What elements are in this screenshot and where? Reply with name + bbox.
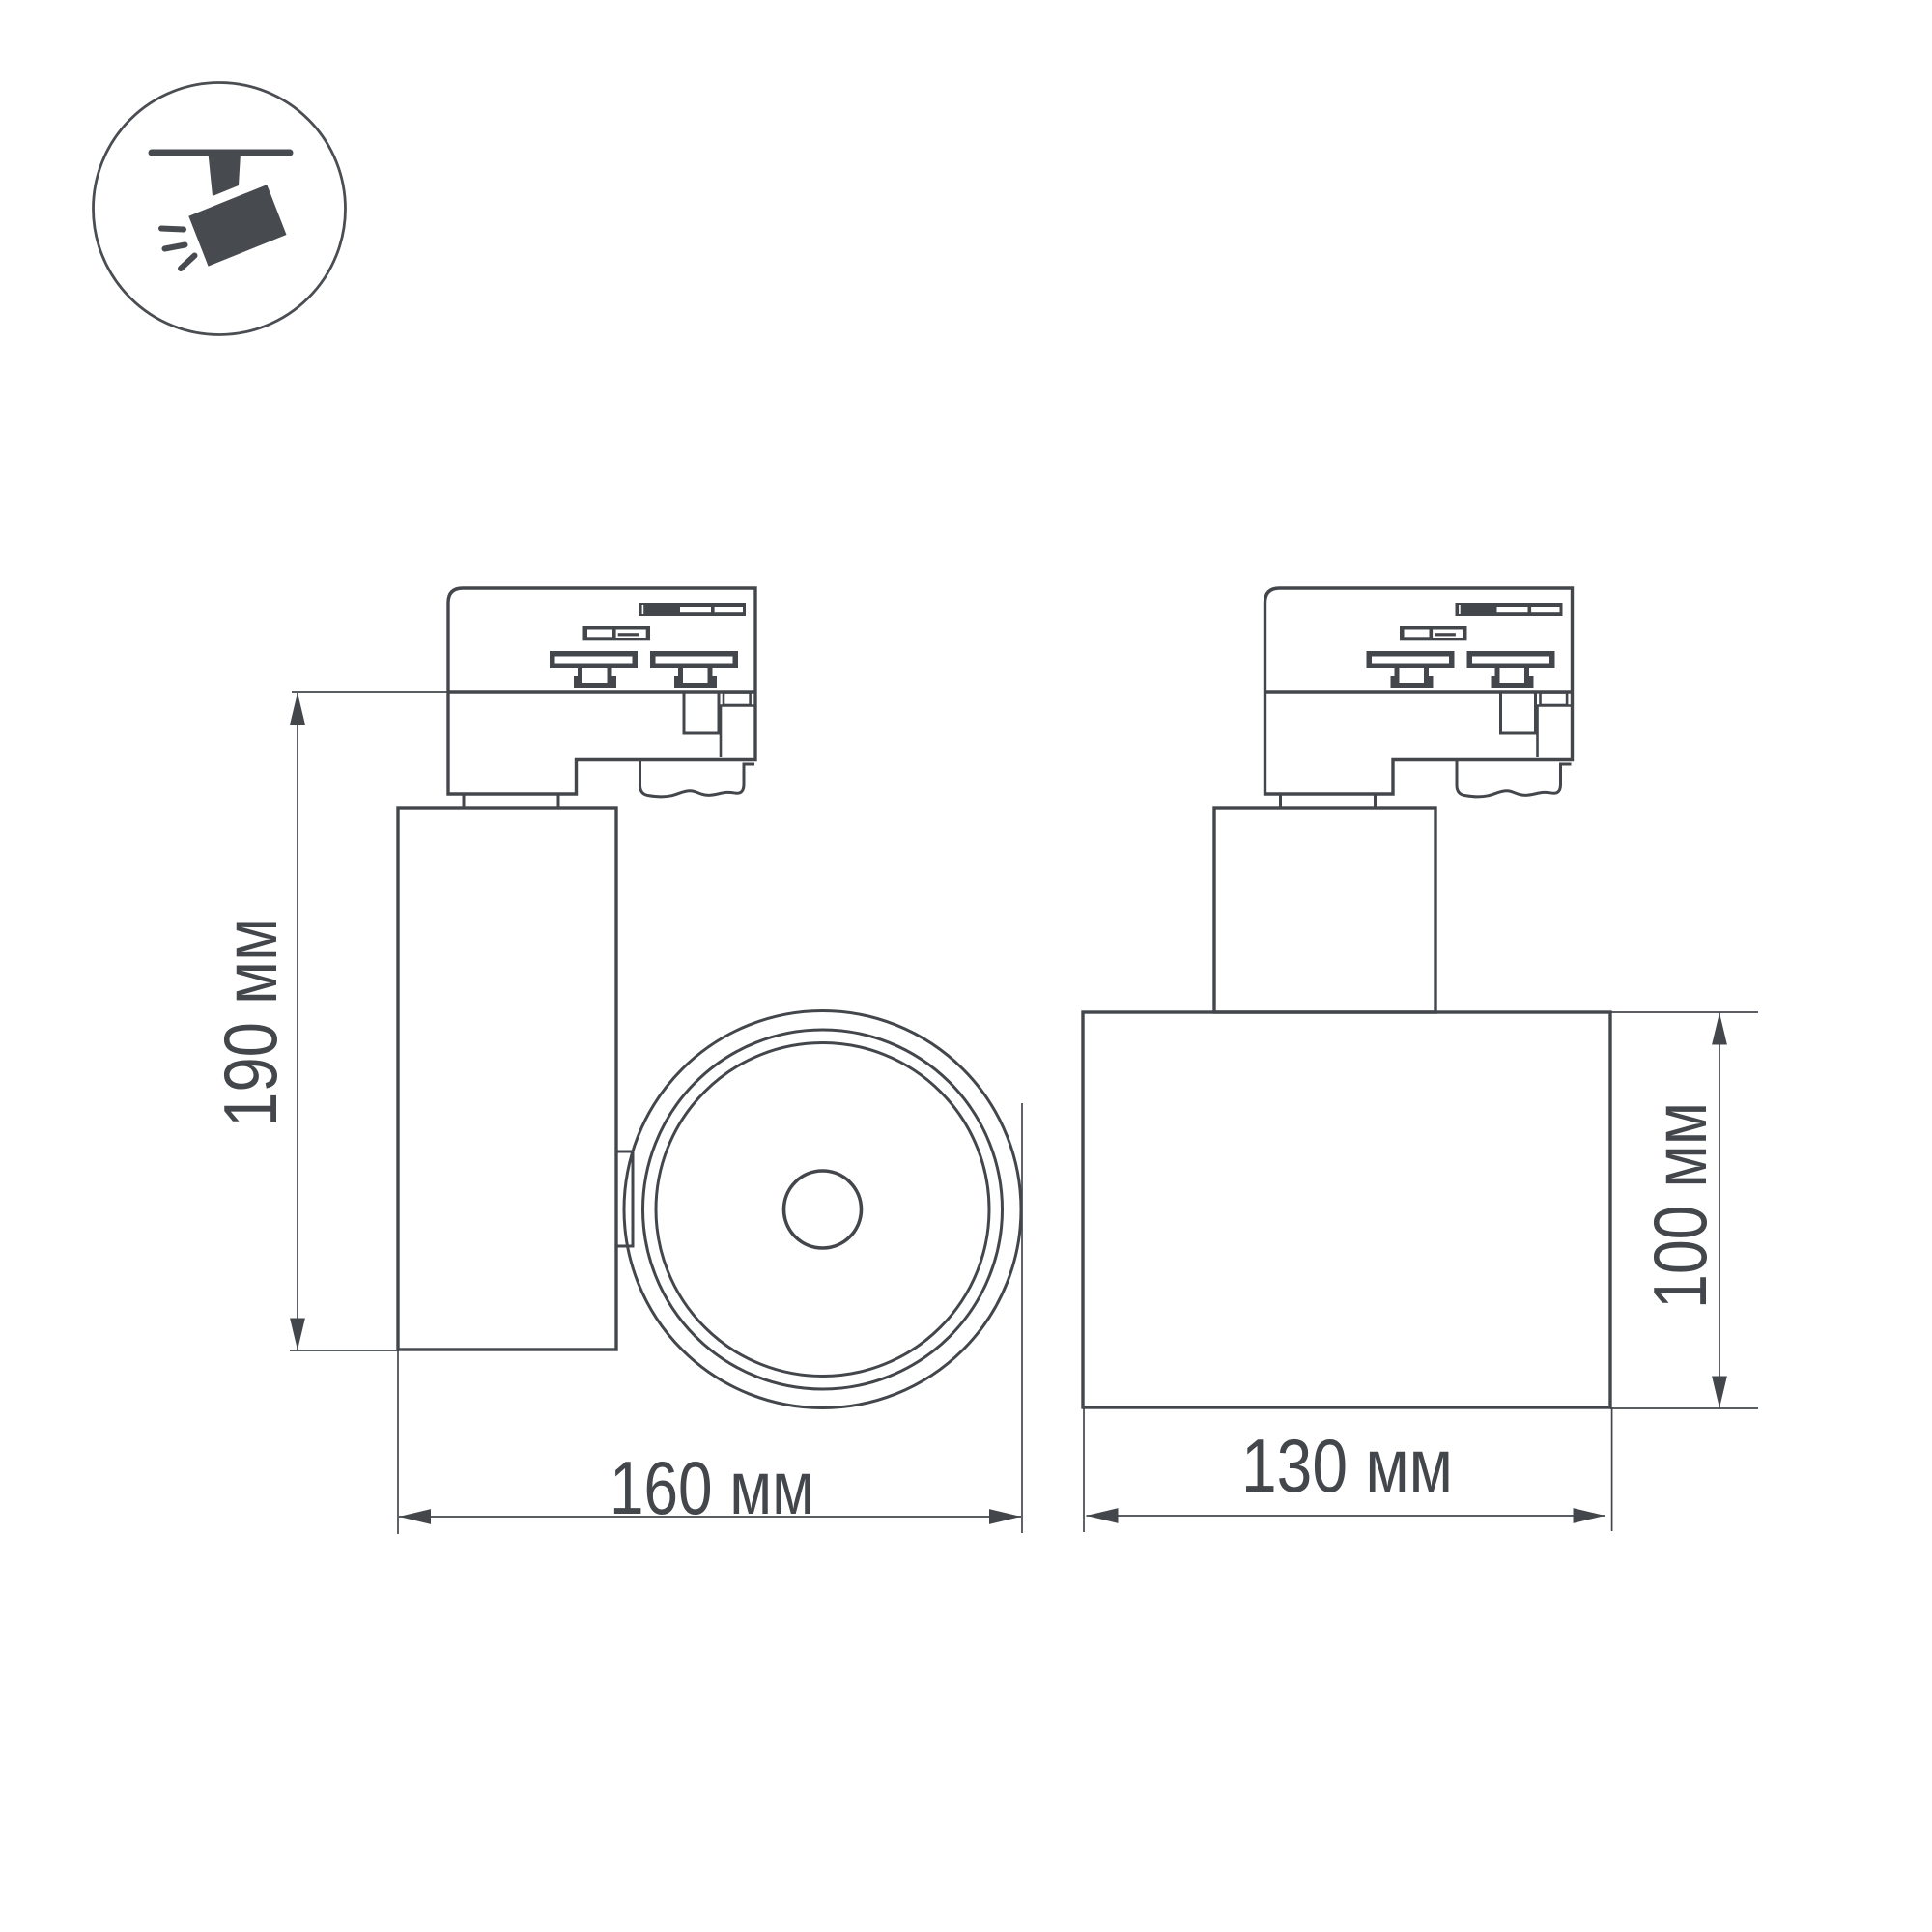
svg-text:130 мм: 130 мм xyxy=(1241,1425,1453,1508)
svg-text:160 мм: 160 мм xyxy=(610,1447,814,1530)
svg-text:190 мм: 190 мм xyxy=(210,918,293,1127)
svg-text:100 мм: 100 мм xyxy=(1639,1102,1722,1309)
